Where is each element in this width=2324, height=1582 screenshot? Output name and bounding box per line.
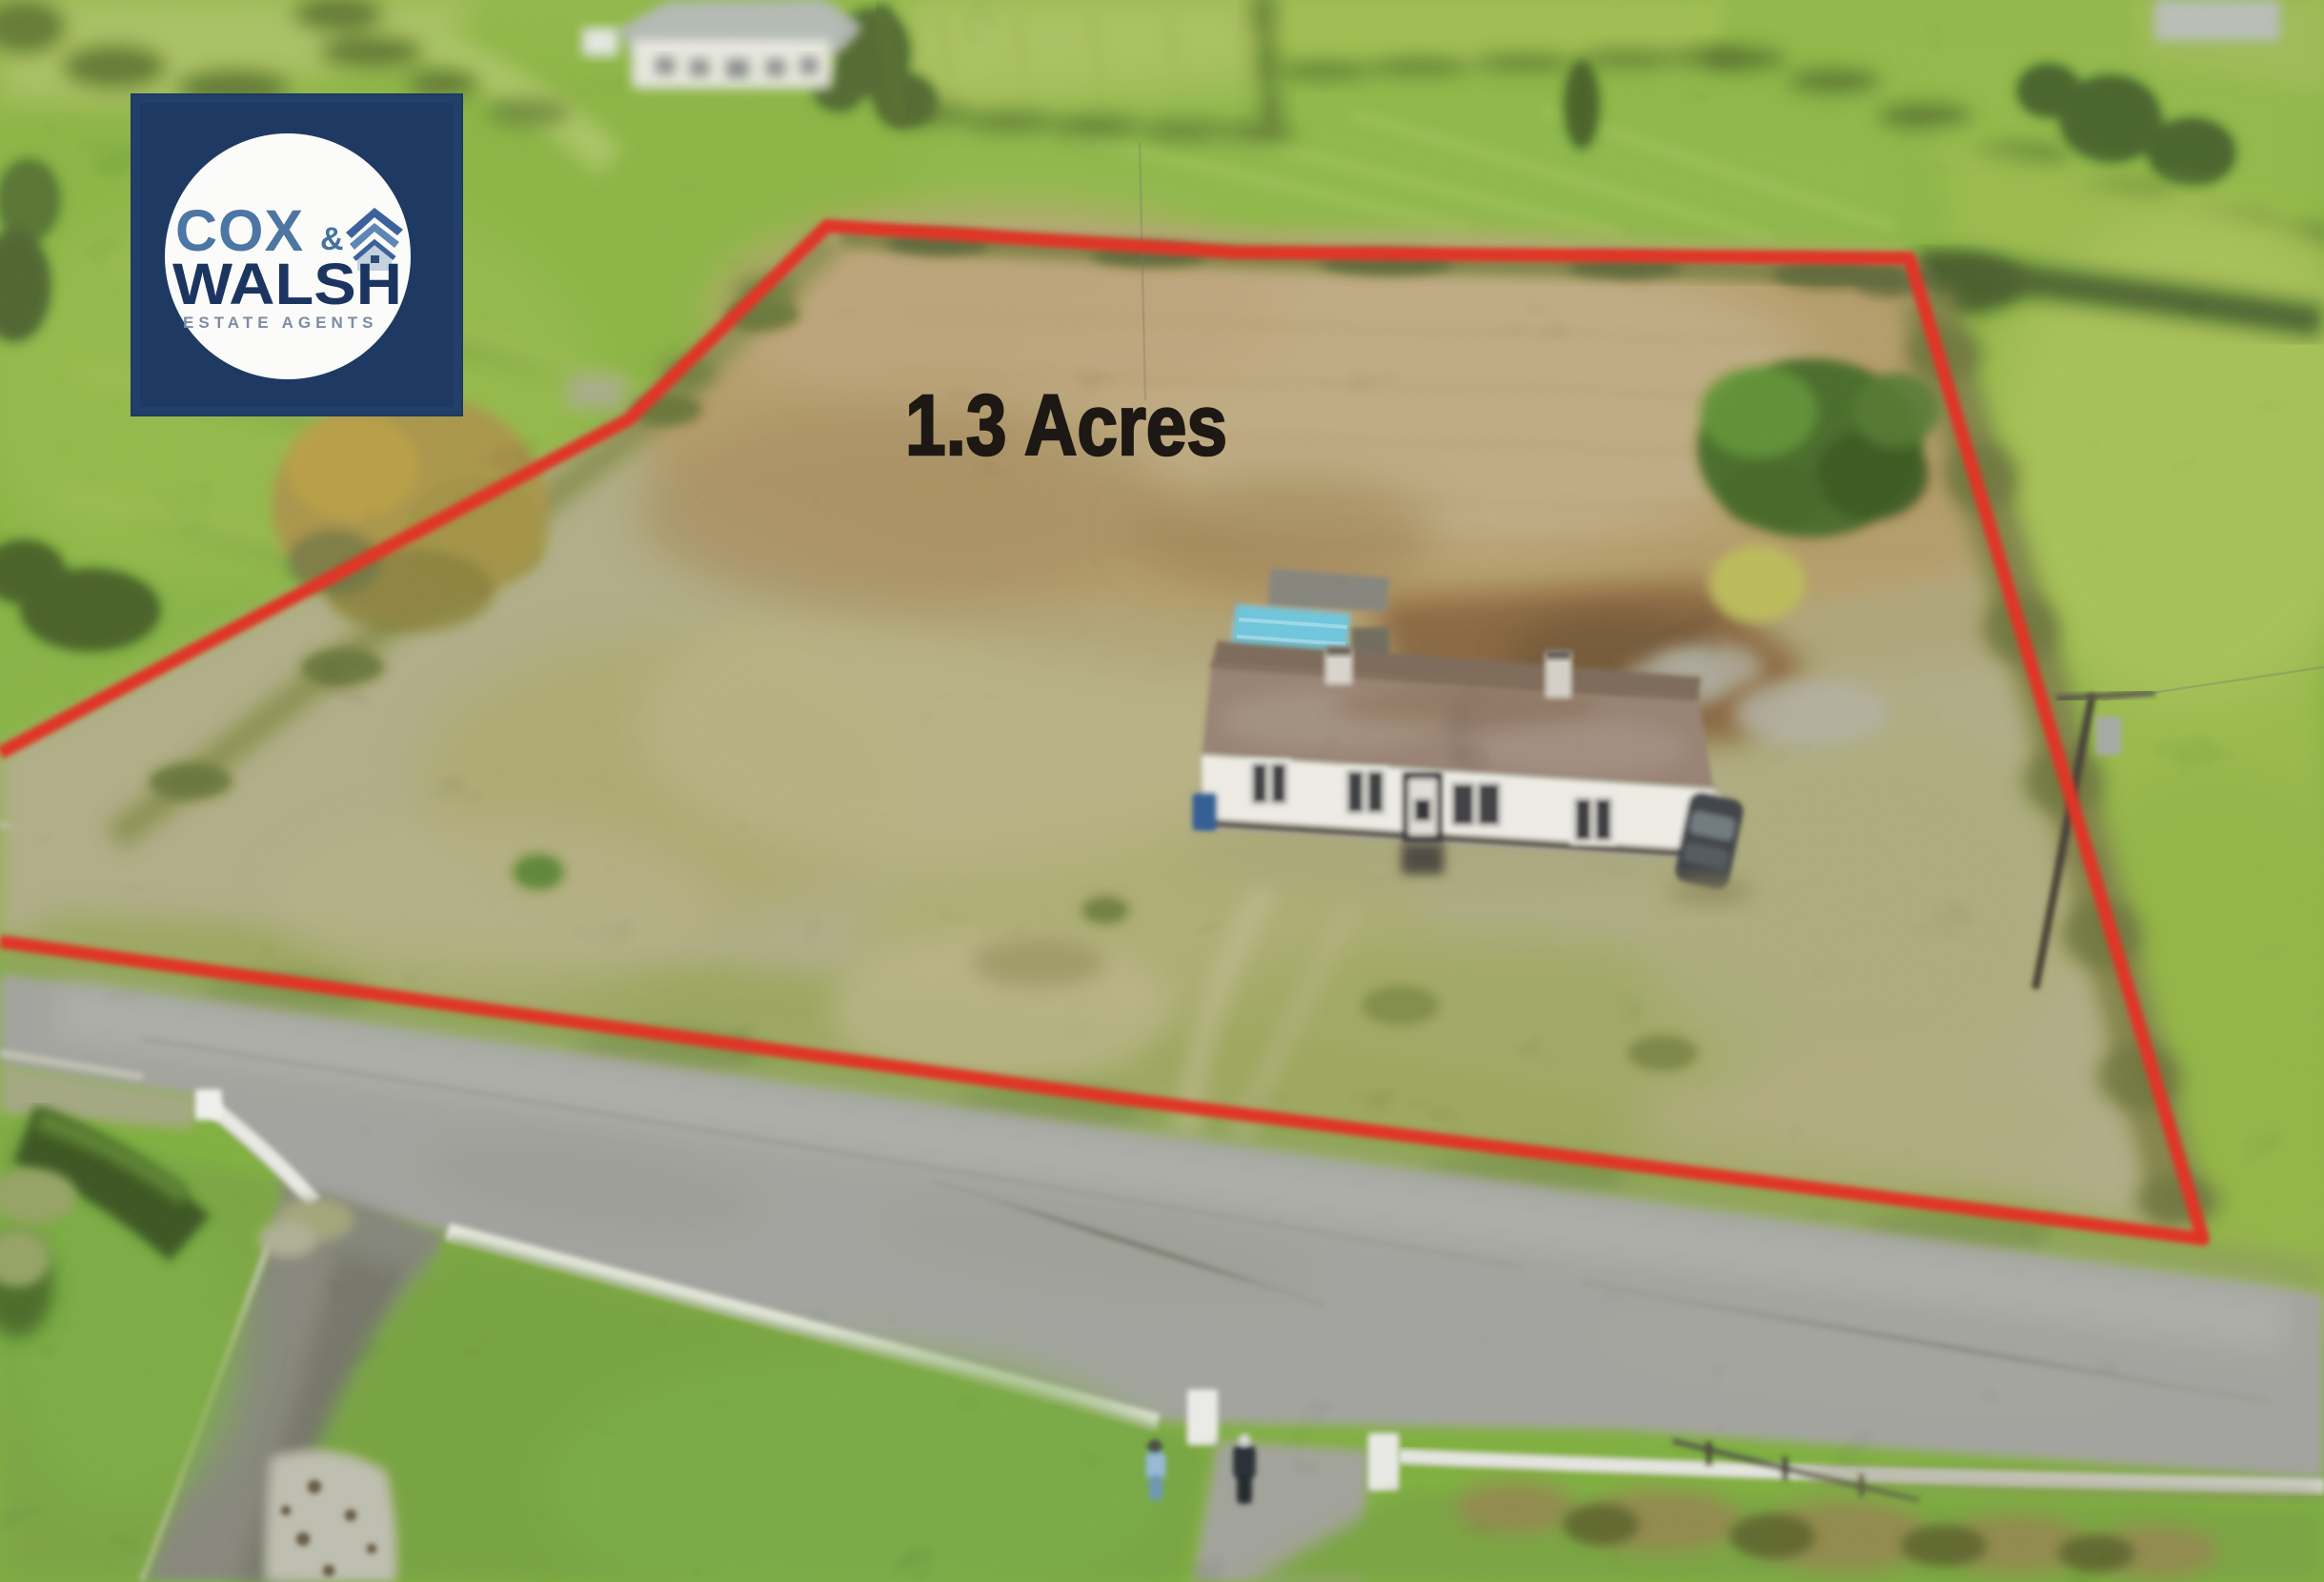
svg-text:1.3 Acres: 1.3 Acres [905,378,1227,474]
svg-text:WALSH: WALSH [172,252,402,316]
svg-text:ESTATE AGENTS: ESTATE AGENTS [183,314,377,332]
